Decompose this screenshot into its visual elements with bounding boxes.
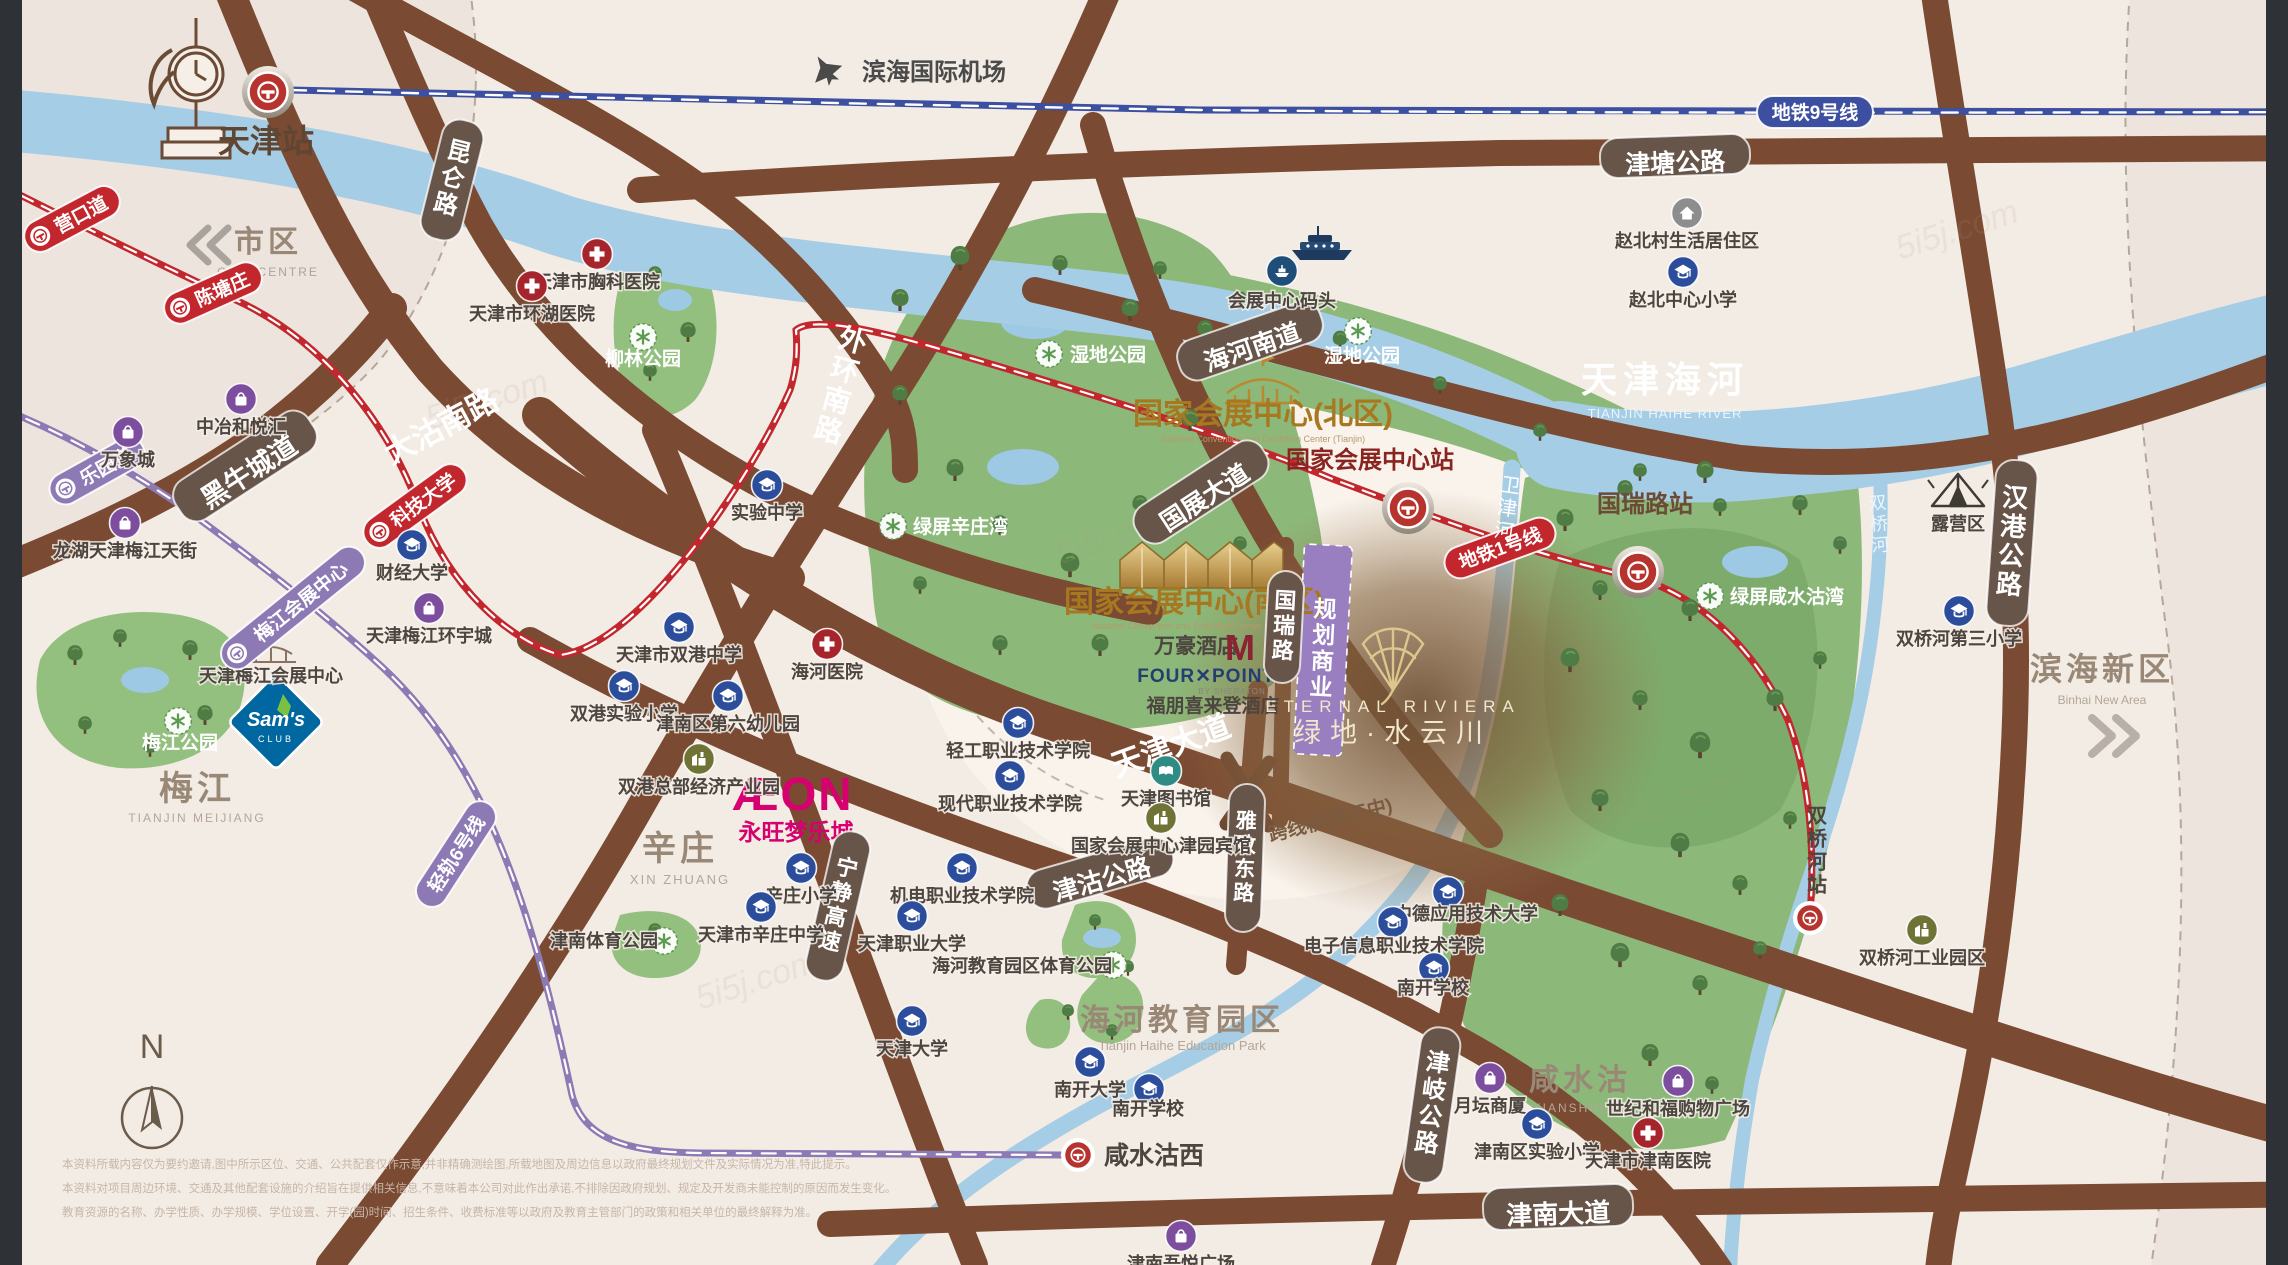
poi-label: 双港总部经济产业园 bbox=[618, 776, 780, 797]
road-label-国瑞路: 国瑞路 bbox=[1263, 570, 1305, 684]
four-points-sub: BY SHERATON bbox=[1198, 687, 1265, 696]
poi-label: 双桥河工业园区 bbox=[1859, 947, 1985, 968]
city-centre-label: 市区 bbox=[234, 225, 302, 259]
poi-label: 中冶和悦汇 bbox=[196, 416, 286, 437]
haihe-river-label: 天津海河 bbox=[1581, 359, 1749, 400]
school-icon bbox=[1522, 1109, 1553, 1140]
school-icon bbox=[897, 1006, 928, 1037]
park-津南体育公园: 津南体育公园 bbox=[550, 928, 677, 955]
sams-line2: CLUB bbox=[258, 734, 294, 744]
park-绿屏辛庄湾: 绿屏辛庄湾 bbox=[880, 513, 1008, 540]
poi-label: 赵北村生活居住区 bbox=[1614, 230, 1759, 251]
poi-label: 天津梅江环宇城 bbox=[366, 625, 492, 646]
vertical-label: 双桥河站 bbox=[1807, 806, 1828, 897]
disclaimer: 本资料所载内容仅为要约邀请,图中所示区位、交通、公共配套仅作示意,并非精确测绘图… bbox=[62, 1157, 896, 1219]
road-label-津塘公路: 津塘公路 bbox=[1599, 133, 1750, 180]
poi-label: 天津市双港中学 bbox=[616, 644, 742, 665]
poi-label: 会展中心码头 bbox=[1228, 290, 1336, 311]
haihe-edu-en: Tianjin Haihe Education Park bbox=[1098, 1038, 1266, 1053]
poi-label: 天津市津南医院 bbox=[1585, 1150, 1711, 1171]
tianjin-station-icon bbox=[242, 66, 294, 118]
hospital-icon bbox=[812, 629, 843, 660]
map-canvas: 天津站 市区 CITY CENTRE 滨海国际机场 国家会展中心(北区) Nat… bbox=[0, 0, 2288, 1265]
road-label-雅致东路: 雅致东路 bbox=[1224, 783, 1265, 932]
poi-label: 天津市辛庄中学 bbox=[698, 924, 824, 945]
poi-label: 国家会展中心津园宾馆 bbox=[1071, 835, 1251, 856]
poi-label: 电子信息职业技术学院 bbox=[1304, 935, 1484, 956]
guorui-station-icon bbox=[1612, 546, 1664, 598]
park-icon bbox=[165, 708, 192, 735]
xinzhuang-area-en: XIN ZHUANG bbox=[630, 872, 730, 887]
park-label: 湿地公园 bbox=[1324, 344, 1400, 367]
metro-label-text: 地铁9号线 bbox=[1772, 101, 1859, 124]
hospital-icon bbox=[1633, 1118, 1664, 1149]
poi-label: 津南区第六幼儿园 bbox=[656, 713, 800, 734]
poi-label: 南开学校 bbox=[1112, 1098, 1185, 1119]
disclaimer-line: 本资料所载内容仅为要约邀请,图中所示区位、交通、公共配套仅作示意,并非精确测绘图… bbox=[62, 1157, 857, 1171]
park-海河教育园区体育公园: 海河教育园区体育公园 bbox=[932, 952, 1126, 979]
school-icon bbox=[897, 901, 928, 932]
poi-label: 双桥河第三小学 bbox=[1896, 628, 2022, 649]
school-icon bbox=[947, 853, 978, 884]
poi-label: 津南区实验小学 bbox=[1474, 1141, 1600, 1162]
poi-label: 现代职业技术学院 bbox=[938, 793, 1082, 814]
binhai-area-label: 滨海新区 bbox=[2030, 651, 2174, 687]
meijiang-center-label: 天津梅江会展中心 bbox=[199, 665, 343, 686]
park-icon bbox=[1036, 341, 1063, 368]
industry-icon bbox=[1907, 915, 1938, 946]
meijiang-area-en: TIANJIN MEIJIANG bbox=[128, 811, 265, 825]
park-label: 绿屏辛庄湾 bbox=[913, 515, 1008, 538]
park-label: 梅江公园 bbox=[142, 731, 218, 754]
metro-label-地铁9号线: 地铁9号线 bbox=[1757, 96, 1873, 128]
marriott-logo: M bbox=[1225, 627, 1255, 668]
shop-icon bbox=[1475, 1063, 1506, 1094]
park-label: 津南体育公园 bbox=[550, 930, 658, 951]
ncec-station-label: 国家会展中心站 bbox=[1286, 446, 1454, 474]
school-icon bbox=[1075, 1047, 1106, 1078]
right-edge bbox=[2266, 0, 2288, 1265]
camping-label: 露营区 bbox=[1931, 513, 1985, 534]
shop-icon bbox=[414, 593, 445, 624]
ferry-icon bbox=[1267, 256, 1298, 287]
park-label: 柳林公园 bbox=[605, 347, 681, 370]
school-icon bbox=[1944, 596, 1975, 627]
convention-north-title: 国家会展中心(北区) bbox=[1133, 398, 1393, 431]
school-icon bbox=[609, 671, 640, 702]
school-icon bbox=[995, 761, 1026, 792]
poi-label: 财经大学 bbox=[376, 562, 448, 583]
disclaimer-line: 本资料对项目周边环境、交通及其他配套设施的介绍旨在提供相关信息,不意味着本公司对… bbox=[62, 1181, 896, 1195]
haihe-edu-label: 海河教育园区 bbox=[1080, 1003, 1284, 1037]
poi-label: 天津大学 bbox=[876, 1038, 948, 1059]
school-icon bbox=[397, 530, 428, 561]
park-icon bbox=[880, 513, 907, 540]
poi-label: 津南吾悦广场 bbox=[1127, 1253, 1235, 1265]
park-icon bbox=[630, 324, 657, 351]
poi-label: 龙湖天津梅江天街 bbox=[53, 540, 197, 561]
xianshuigu-west-station-icon bbox=[1061, 1138, 1095, 1172]
shop-icon bbox=[110, 508, 141, 539]
park-湿地公园: 湿地公园 bbox=[1036, 341, 1146, 368]
poi-label: 万象城 bbox=[100, 449, 155, 470]
school-icon bbox=[1378, 907, 1409, 938]
poi-label: 海河医院 bbox=[791, 661, 863, 682]
home-icon bbox=[1672, 198, 1703, 229]
school-icon bbox=[786, 853, 817, 884]
shop-icon bbox=[1166, 1221, 1197, 1252]
xianshuigu-area-label: 咸水沽 bbox=[1529, 1064, 1631, 1097]
hospital-icon bbox=[582, 239, 613, 270]
school-icon bbox=[1668, 257, 1699, 288]
haihe-river-en: TIANJIN HAIHE RIVER bbox=[1588, 406, 1743, 421]
school-icon bbox=[1003, 708, 1034, 739]
meijiang-area-label: 梅江 bbox=[159, 770, 235, 808]
compass-n: N bbox=[140, 1028, 165, 1066]
industry-icon bbox=[1146, 803, 1177, 834]
book-icon bbox=[1151, 756, 1182, 787]
location-map: 天津站 市区 CITY CENTRE 滨海国际机场 国家会展中心(北区) Nat… bbox=[0, 0, 2288, 1265]
left-edge bbox=[0, 0, 22, 1265]
poi-label: 天津职业大学 bbox=[858, 933, 966, 954]
disclaimer-line: 教育资源的名称、办学性质、办学规模、学位设置、开学(园)时间、招生条件、收费标准… bbox=[62, 1205, 817, 1219]
poi-label: 天津市环湖医院 bbox=[469, 303, 595, 324]
school-icon bbox=[713, 681, 744, 712]
poi-label: 天津市胸科医院 bbox=[534, 271, 660, 292]
sams-line1: Sam's bbox=[247, 709, 305, 731]
poi-label: 中德应用技术大学 bbox=[1394, 903, 1538, 924]
poi-label: 南开大学 bbox=[1054, 1079, 1126, 1100]
poi-label: 月坛商厦 bbox=[1453, 1095, 1527, 1116]
poi-label: 轻工职业技术学院 bbox=[946, 740, 1090, 761]
shop-icon bbox=[1663, 1066, 1694, 1097]
xinzhuang-area-label: 辛庄 bbox=[642, 830, 718, 868]
shuangqiaohe-station-icon bbox=[1793, 901, 1827, 935]
park-label: 湿地公园 bbox=[1070, 343, 1146, 366]
poi-label: 南开学校 bbox=[1397, 977, 1470, 998]
guorui-station-label: 国瑞路站 bbox=[1597, 490, 1693, 518]
park-绿屏咸水沽湾: 绿屏咸水沽湾 bbox=[1697, 583, 1844, 610]
industry-icon bbox=[684, 744, 715, 775]
road-label-text: 津南大道 bbox=[1506, 1197, 1611, 1231]
poi-label: 实验中学 bbox=[731, 502, 803, 523]
ncec-station-icon bbox=[1382, 482, 1434, 534]
xianshuigu-west-label: 咸水沽西 bbox=[1104, 1142, 1204, 1170]
convention-north-en: National Convention and Exhibition Cente… bbox=[1161, 434, 1365, 444]
school-icon bbox=[752, 470, 783, 501]
shop-icon bbox=[226, 384, 257, 415]
binhai-area-en: Binhai New Area bbox=[2058, 693, 2147, 707]
school-icon bbox=[1433, 877, 1464, 908]
shop-icon bbox=[113, 417, 144, 448]
hospital-icon bbox=[517, 271, 548, 302]
park-label: 绿屏咸水沽湾 bbox=[1730, 585, 1844, 608]
road-label-津南大道: 津南大道 bbox=[1482, 1183, 1633, 1231]
school-icon bbox=[746, 892, 777, 923]
airport-label: 滨海国际机场 bbox=[862, 58, 1006, 86]
park-label: 海河教育园区体育公园 bbox=[932, 955, 1112, 976]
park-icon bbox=[1345, 318, 1372, 345]
road-label-text: 津塘公路 bbox=[1625, 147, 1727, 180]
park-icon bbox=[1697, 583, 1724, 610]
project-name-cn: 绿地·水云川 bbox=[1294, 718, 1492, 748]
project-name-en: ETERNAL RIVIERA bbox=[1265, 697, 1521, 716]
tianjin-station-label: 天津站 bbox=[218, 123, 314, 159]
poi-label: 世纪和福购物广场 bbox=[1606, 1098, 1750, 1119]
poi-label: 赵北中心小学 bbox=[1628, 289, 1737, 310]
school-icon bbox=[664, 612, 695, 643]
